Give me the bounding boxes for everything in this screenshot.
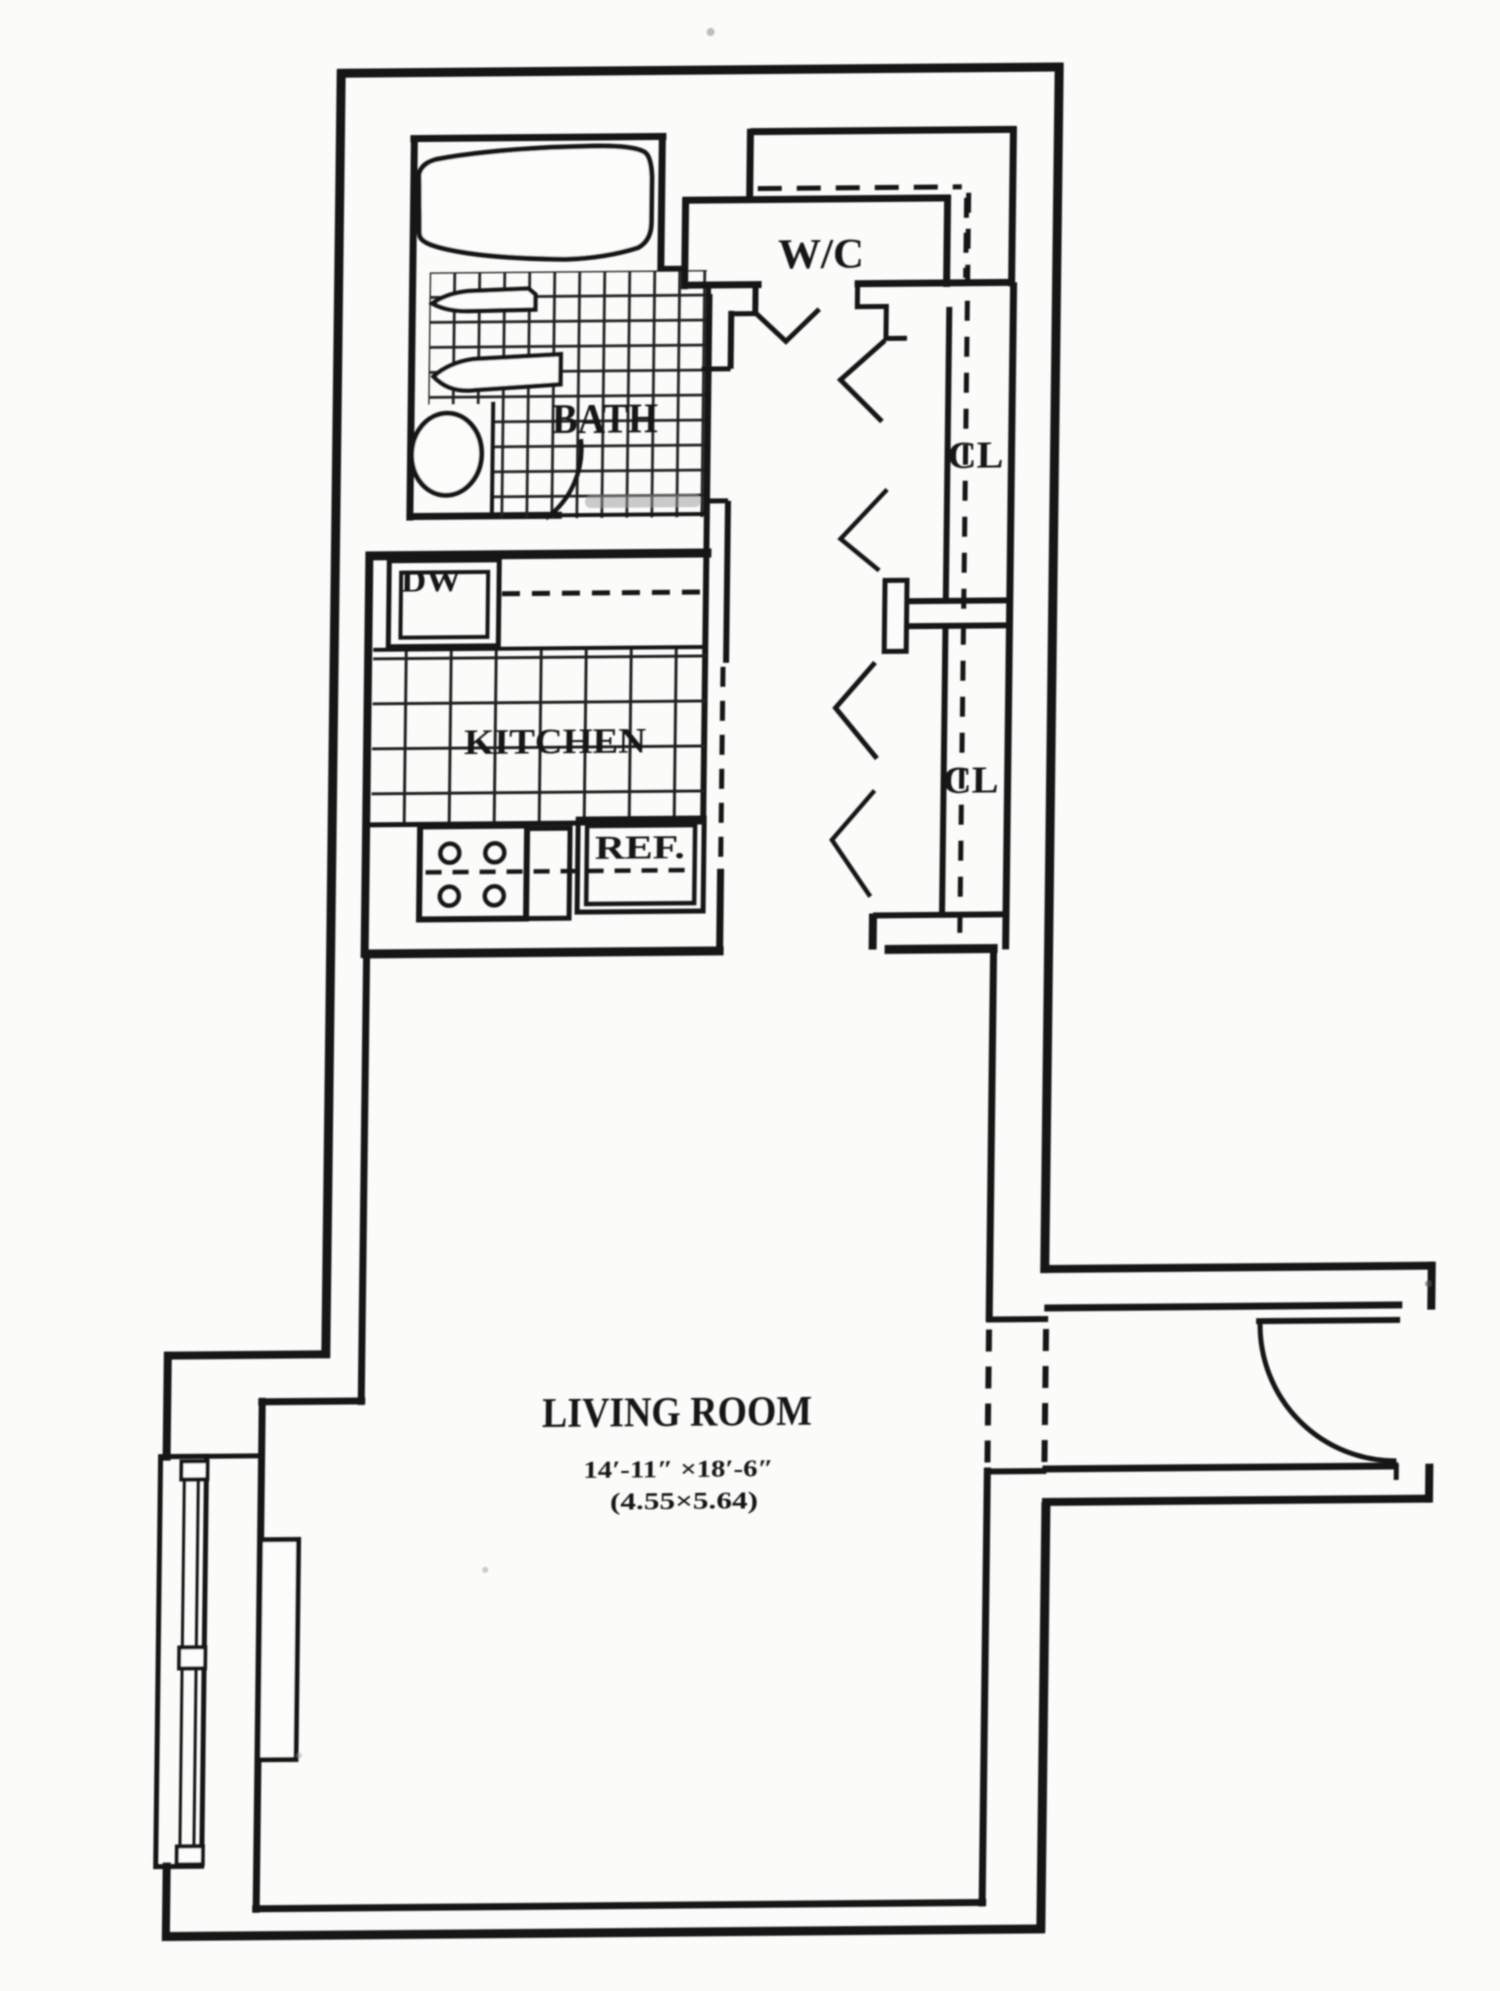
svg-text:DW: DW (401, 562, 461, 599)
svg-text:BATH: BATH (552, 396, 659, 443)
svg-text:(4.55×5.64): (4.55×5.64) (610, 1488, 758, 1515)
svg-text:CL: CL (942, 759, 999, 801)
svg-text:CL: CL (947, 434, 1004, 476)
svg-text:REF.: REF. (595, 829, 685, 867)
svg-text:14′-11″ ×18′-6″: 14′-11″ ×18′-6″ (583, 1456, 773, 1484)
svg-text:W/C: W/C (778, 232, 865, 279)
svg-text:LIVING ROOM: LIVING ROOM (542, 1389, 813, 1437)
svg-text:KITCHEN: KITCHEN (464, 720, 646, 762)
